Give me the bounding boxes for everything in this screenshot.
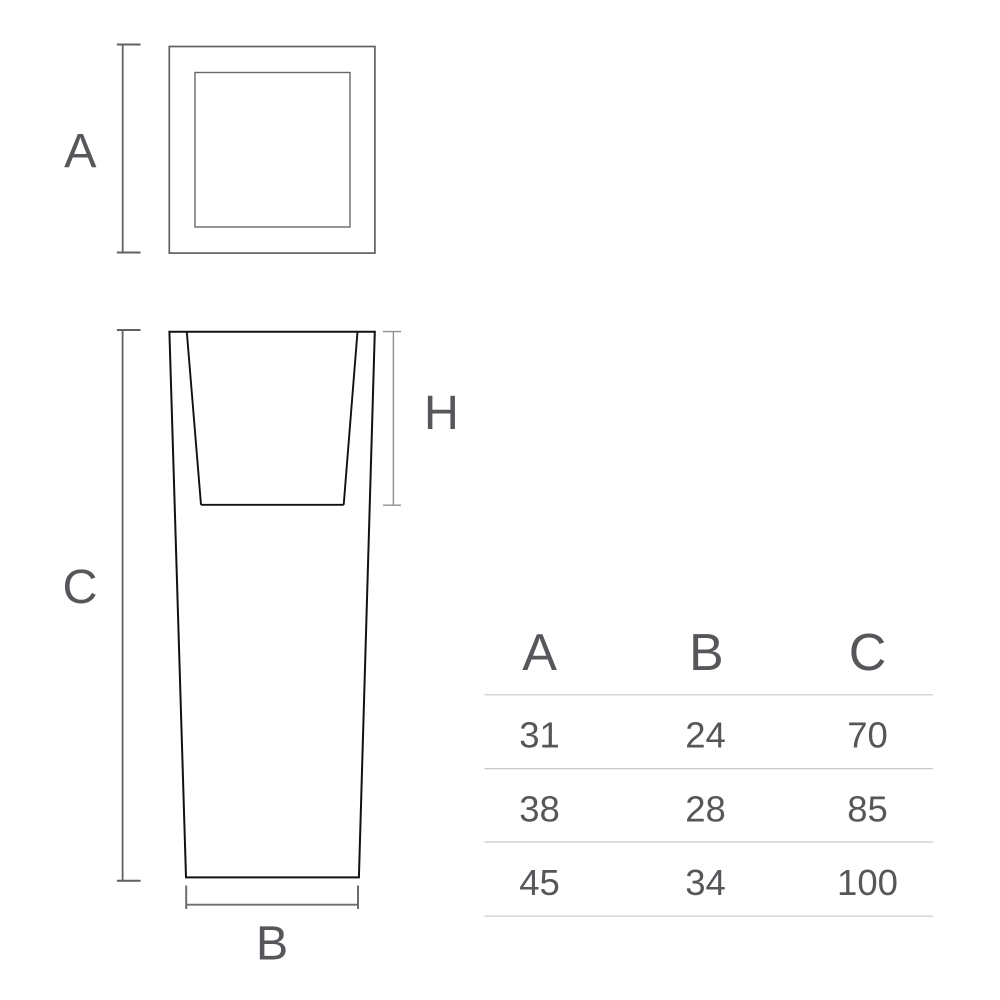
svg-text:C: C bbox=[62, 560, 97, 614]
svg-text:C: C bbox=[849, 624, 887, 682]
svg-text:45: 45 bbox=[519, 862, 560, 903]
svg-text:B: B bbox=[256, 917, 288, 971]
svg-text:34: 34 bbox=[685, 862, 726, 903]
svg-text:H: H bbox=[424, 386, 459, 440]
svg-text:100: 100 bbox=[837, 862, 898, 903]
svg-text:38: 38 bbox=[519, 788, 560, 829]
svg-text:B: B bbox=[689, 624, 724, 682]
svg-text:85: 85 bbox=[847, 788, 888, 829]
svg-text:28: 28 bbox=[685, 788, 726, 829]
svg-text:31: 31 bbox=[519, 715, 560, 756]
svg-text:A: A bbox=[64, 124, 97, 178]
svg-text:70: 70 bbox=[847, 715, 888, 756]
svg-text:24: 24 bbox=[685, 715, 726, 756]
svg-text:A: A bbox=[522, 624, 557, 682]
